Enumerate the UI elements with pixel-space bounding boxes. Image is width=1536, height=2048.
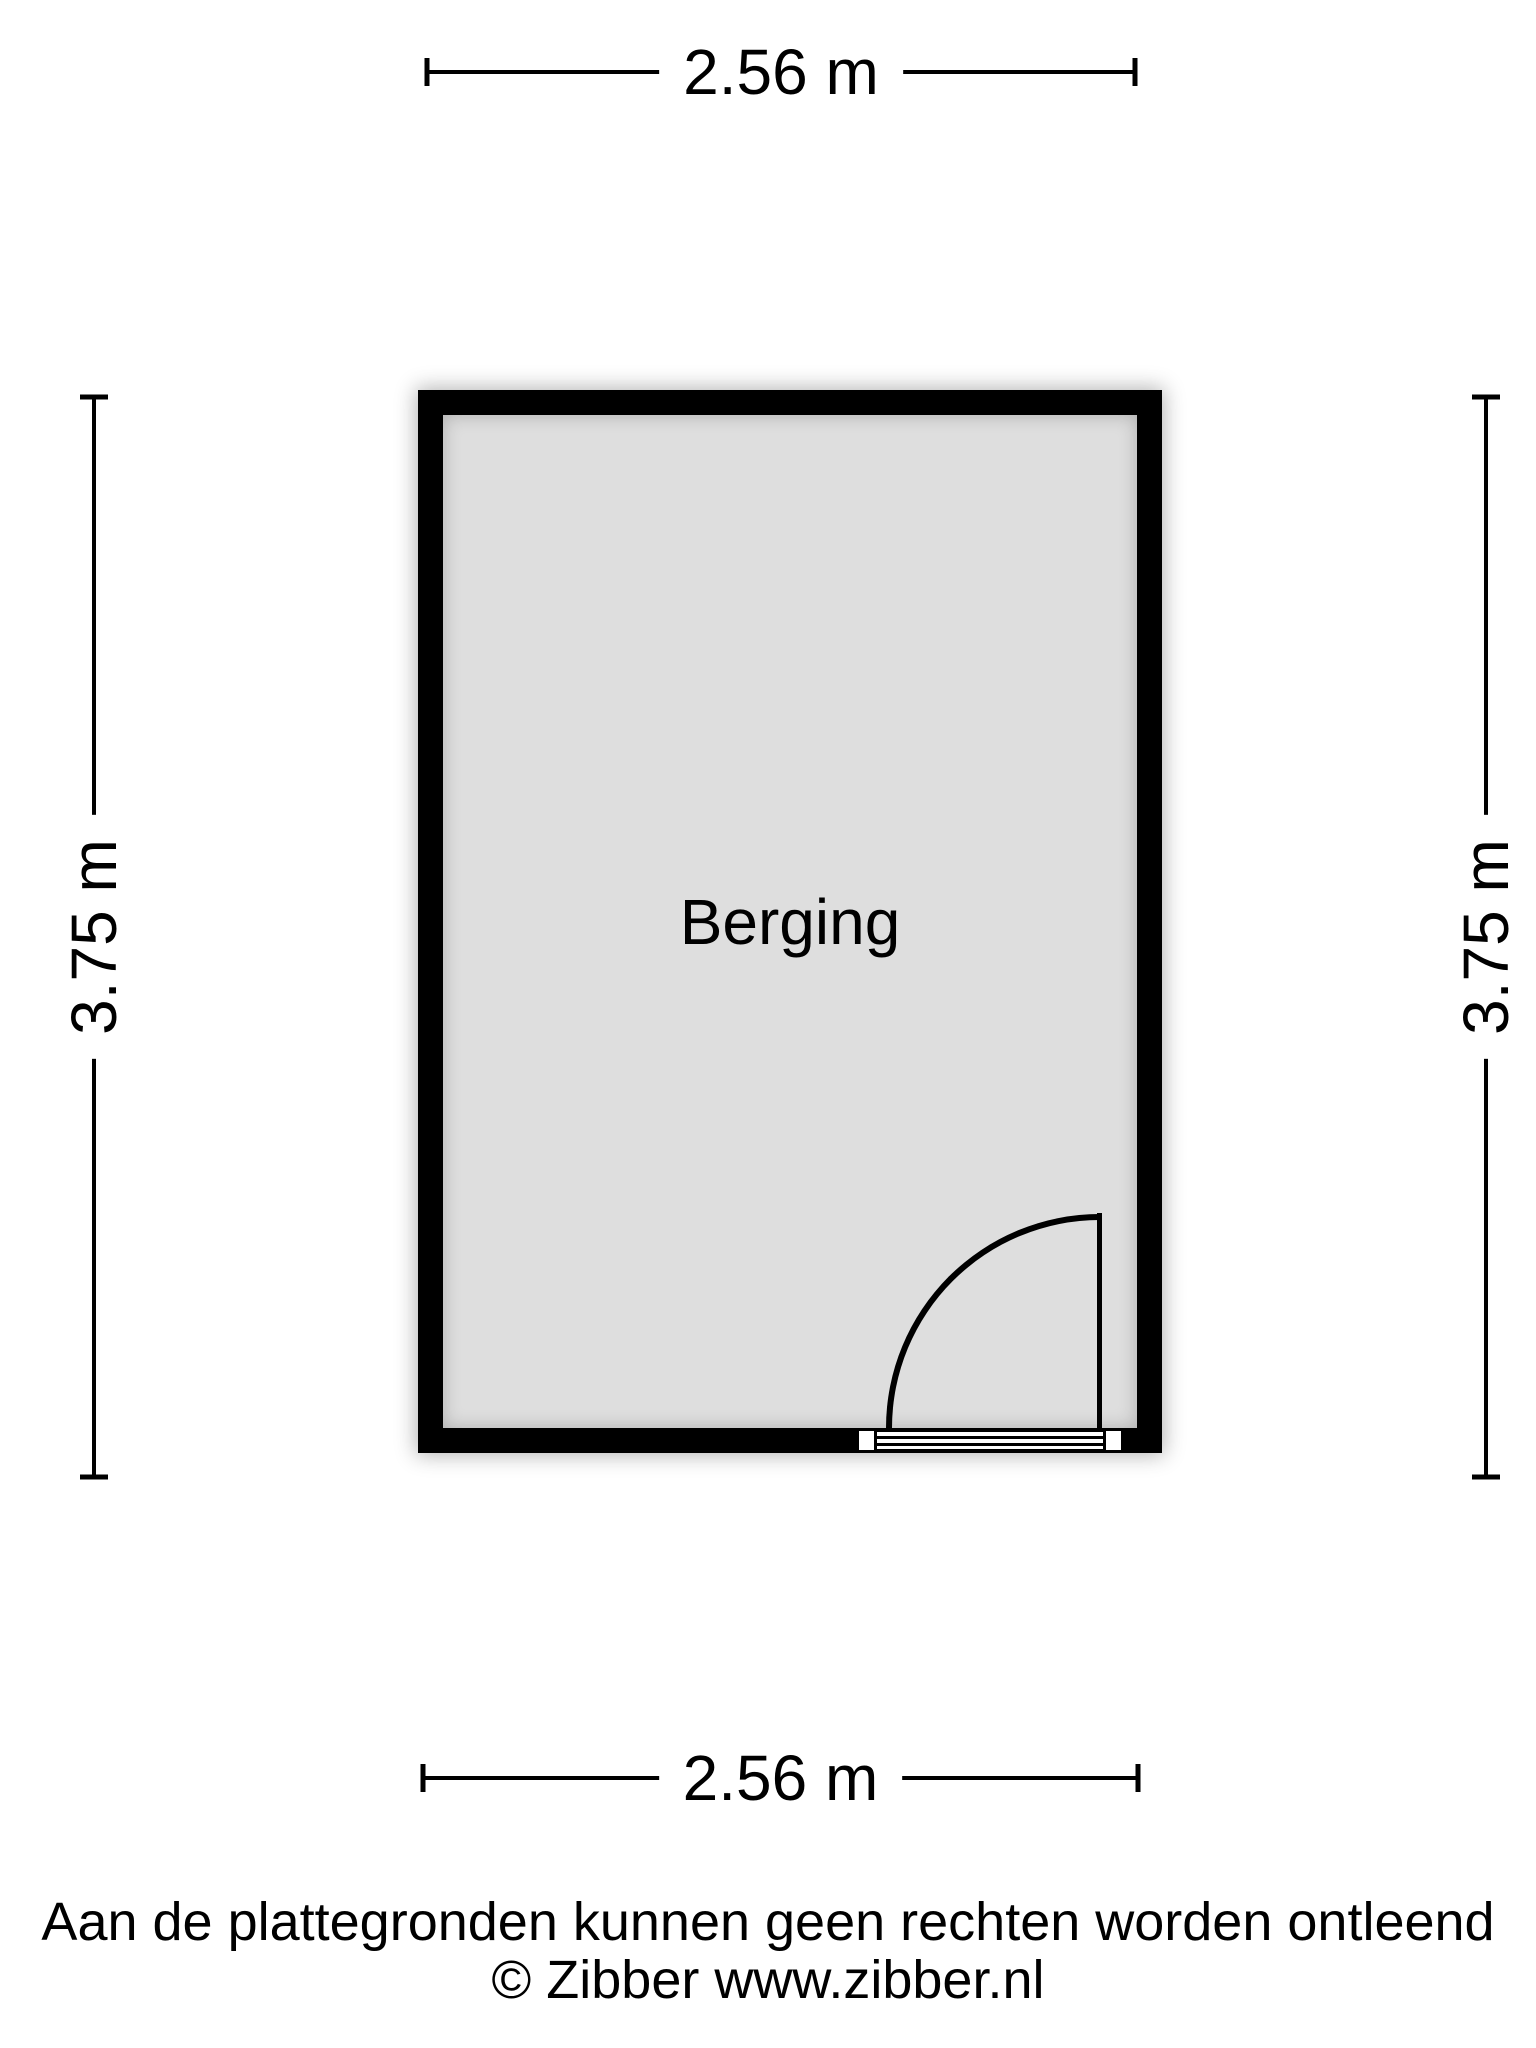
dimension-tick bbox=[421, 1764, 426, 1792]
dimension-tick bbox=[1133, 58, 1138, 86]
door-jamb-right bbox=[1103, 1428, 1124, 1453]
dimension-tick bbox=[1136, 1764, 1141, 1792]
dimension-label-left: 3.75 m bbox=[62, 815, 126, 1059]
room-label: Berging bbox=[680, 890, 901, 954]
dimension-tick bbox=[1472, 395, 1500, 400]
footer-disclaimer: Aan de plattegronden kunnen geen rechten… bbox=[0, 1893, 1536, 1951]
dimension-line-right: 3.75 m bbox=[1484, 397, 1488, 1477]
dimension-line-bottom: 2.56 m bbox=[423, 1776, 1138, 1780]
dimension-line-left: 3.75 m bbox=[92, 397, 96, 1477]
floorplan-canvas: 2.56 m 3.75 m 3.75 m Berging 2.56 m Aan … bbox=[0, 0, 1536, 2048]
footer-credit: © Zibber www.zibber.nl bbox=[0, 1951, 1536, 2009]
dimension-tick bbox=[80, 395, 108, 400]
door-jamb-left bbox=[856, 1428, 877, 1453]
door-leaf bbox=[1097, 1213, 1102, 1431]
footer: Aan de plattegronden kunnen geen rechten… bbox=[0, 1893, 1536, 2009]
dimension-line-top: 2.56 m bbox=[427, 70, 1135, 74]
dimension-label-top: 2.56 m bbox=[659, 40, 903, 104]
dimension-label-right: 3.75 m bbox=[1454, 815, 1518, 1059]
dimension-label-bottom: 2.56 m bbox=[659, 1746, 903, 1810]
threshold-line bbox=[877, 1436, 1103, 1439]
dimension-tick bbox=[80, 1475, 108, 1480]
threshold-line bbox=[877, 1443, 1103, 1446]
dimension-tick bbox=[1472, 1475, 1500, 1480]
door-threshold bbox=[877, 1428, 1103, 1453]
dimension-tick bbox=[425, 58, 430, 86]
